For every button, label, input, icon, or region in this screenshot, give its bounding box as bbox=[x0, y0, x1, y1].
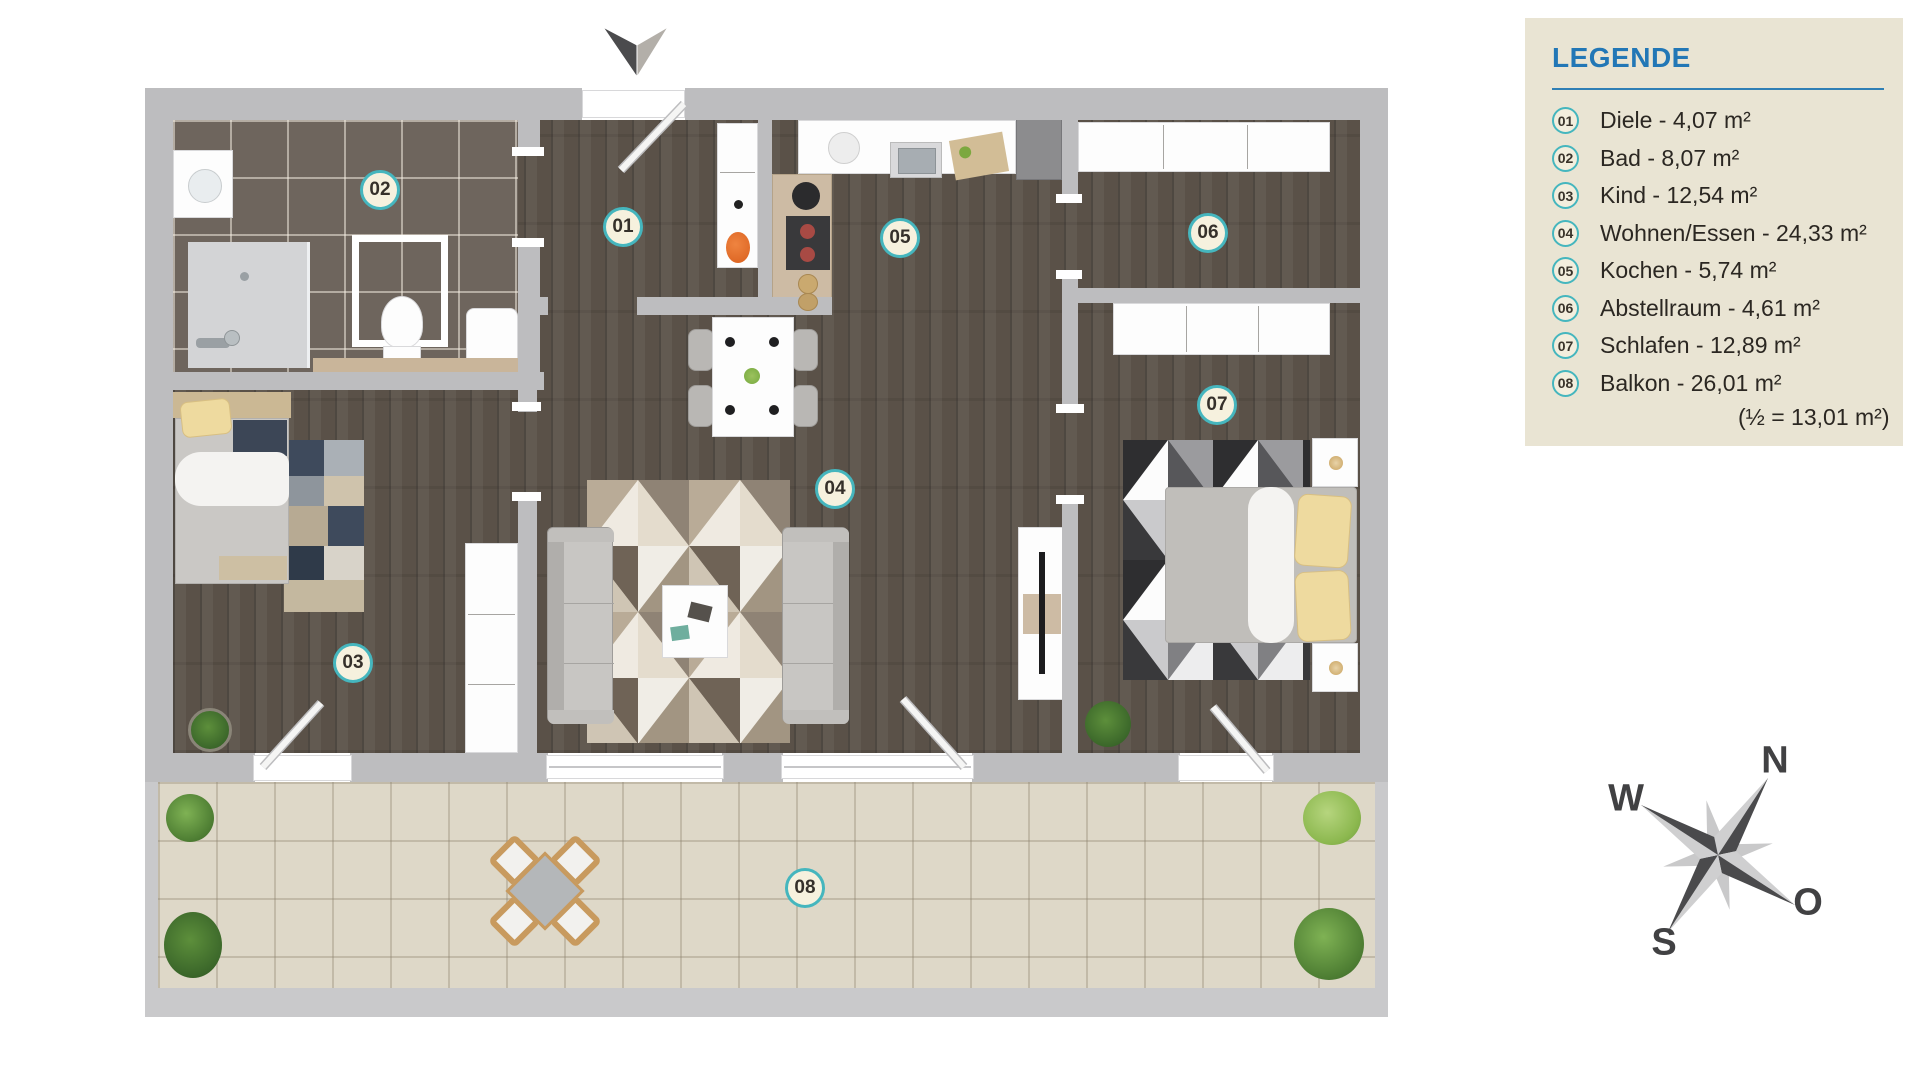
wall bbox=[145, 88, 582, 120]
wall bbox=[145, 372, 544, 390]
dining-chair bbox=[688, 385, 714, 427]
book bbox=[687, 602, 712, 623]
sideboard-divider bbox=[720, 172, 755, 173]
legend-title: LEGENDE bbox=[1552, 42, 1903, 74]
legend-number-badge: 02 bbox=[1552, 145, 1579, 172]
sofa-backrest bbox=[548, 528, 564, 724]
dining-chair bbox=[792, 385, 818, 427]
shelf-divider bbox=[1247, 125, 1248, 169]
legend-item-label: Bad - 8,07 m² bbox=[1600, 145, 1739, 172]
wall bbox=[145, 120, 173, 782]
sofa-backrest bbox=[833, 528, 849, 724]
burner bbox=[800, 247, 815, 262]
legend-number-badge: 08 bbox=[1552, 370, 1579, 397]
door-jamb bbox=[1056, 270, 1082, 279]
pillow bbox=[179, 397, 232, 438]
bedroom-wardrobe bbox=[1113, 303, 1330, 355]
compass-south-label: S bbox=[1651, 922, 1676, 965]
balcony-wall bbox=[1375, 782, 1388, 1017]
door-jamb bbox=[512, 238, 544, 247]
legend-item: 03 Kind - 12,54 m² bbox=[1552, 177, 1903, 215]
balcony-wall bbox=[145, 988, 1388, 1017]
magazine bbox=[670, 625, 690, 641]
room-badge-balkon: 08 bbox=[785, 868, 825, 908]
wall bbox=[1360, 120, 1388, 782]
legend-item: 04 Wohnen/Essen - 24,33 m² bbox=[1552, 215, 1903, 253]
sofa-armrest bbox=[783, 528, 849, 542]
cushion-seam bbox=[783, 603, 833, 604]
dining-chair bbox=[792, 329, 818, 371]
folded-blanket bbox=[233, 420, 287, 456]
shower-drain bbox=[240, 272, 249, 281]
dining-table bbox=[712, 317, 794, 437]
bed-foot-throw bbox=[219, 556, 287, 580]
legend-item-label: Abstellraum - 4,61 m² bbox=[1600, 295, 1820, 322]
balcony-door-threshold-kind bbox=[253, 755, 352, 781]
shelf-divider bbox=[1163, 125, 1164, 169]
compass-north-label: N bbox=[1761, 740, 1788, 783]
pillow bbox=[1294, 493, 1353, 569]
jar bbox=[798, 274, 818, 294]
nightstand bbox=[1312, 643, 1358, 692]
sofa bbox=[782, 527, 848, 723]
legend-item-label: Diele - 4,07 m² bbox=[1600, 107, 1751, 134]
room-badge-bad: 02 bbox=[360, 170, 400, 210]
room-badge-schlafen: 07 bbox=[1197, 385, 1237, 425]
tv bbox=[1039, 552, 1045, 674]
legend-item: 02 Bad - 8,07 m² bbox=[1552, 140, 1903, 178]
plant bbox=[188, 708, 232, 752]
duvet bbox=[175, 452, 289, 506]
wall bbox=[972, 753, 1180, 782]
plant bbox=[164, 912, 222, 978]
wall bbox=[1062, 120, 1078, 200]
wardrobe-divider bbox=[1258, 306, 1259, 352]
legend-divider bbox=[1552, 88, 1884, 90]
legend-item: 06 Abstellraum - 4,61 m² bbox=[1552, 290, 1903, 328]
balcony-wall bbox=[145, 782, 158, 1017]
legend-item: 07 Schlafen - 12,89 m² bbox=[1552, 327, 1903, 365]
legend-number-badge: 01 bbox=[1552, 107, 1579, 134]
wardrobe-divider bbox=[468, 614, 515, 615]
place-setting bbox=[769, 337, 779, 347]
nightstand bbox=[1312, 438, 1358, 487]
compass-west-label: W bbox=[1608, 778, 1644, 821]
cooktop bbox=[786, 216, 830, 270]
room-badge-kochen: 05 bbox=[880, 218, 920, 258]
kettle bbox=[792, 182, 820, 210]
balcony-door-threshold-schlafen bbox=[1178, 755, 1274, 781]
cushion-seam bbox=[564, 603, 614, 604]
plant bbox=[166, 794, 214, 842]
kids-wardrobe bbox=[465, 543, 518, 753]
door-jamb bbox=[1056, 495, 1084, 504]
wall bbox=[173, 753, 255, 782]
legend-item: 01 Diele - 4,07 m² bbox=[1552, 102, 1903, 140]
wall bbox=[722, 753, 783, 782]
sofa-armrest bbox=[783, 710, 849, 724]
jar bbox=[798, 293, 818, 311]
legend-number-badge: 04 bbox=[1552, 220, 1579, 247]
wardrobe-divider bbox=[468, 684, 515, 685]
bath-threshold-strip bbox=[313, 358, 518, 372]
wall bbox=[518, 240, 540, 390]
place-setting bbox=[725, 405, 735, 415]
shower-area bbox=[188, 242, 310, 368]
plant bbox=[1085, 701, 1131, 747]
wall bbox=[1272, 753, 1360, 782]
bathroom-vanity bbox=[173, 150, 233, 218]
storage-shelf bbox=[1078, 122, 1330, 172]
lamp bbox=[1329, 661, 1343, 675]
sofa-armrest bbox=[548, 710, 614, 724]
hall-sideboard bbox=[717, 123, 758, 268]
kitchen-sink bbox=[890, 142, 942, 178]
door-jamb bbox=[1056, 194, 1082, 203]
wall bbox=[758, 120, 772, 297]
wall bbox=[518, 88, 540, 155]
cushion-seam bbox=[564, 663, 614, 664]
lamp bbox=[1329, 456, 1343, 470]
room-badge-wohnen: 04 bbox=[815, 469, 855, 509]
legend-item-label: Schlafen - 12,89 m² bbox=[1600, 332, 1801, 359]
orange-bowl bbox=[726, 232, 750, 263]
wall bbox=[685, 88, 1388, 120]
legend-item-label: Wohnen/Essen - 24,33 m² bbox=[1600, 220, 1867, 247]
pillow bbox=[1294, 570, 1352, 643]
door-jamb bbox=[512, 402, 541, 411]
faucet-knob bbox=[734, 200, 743, 209]
entrance-arrow-icon bbox=[603, 27, 668, 77]
legend-footnote: (½ = 13,01 m²) bbox=[1738, 404, 1903, 431]
wall bbox=[518, 297, 548, 315]
window bbox=[781, 755, 974, 779]
door-jamb bbox=[1056, 404, 1084, 413]
wall bbox=[350, 753, 548, 782]
wall bbox=[1062, 497, 1078, 753]
herbs bbox=[958, 145, 972, 159]
legend-panel: LEGENDE 01 Diele - 4,07 m² 02 Bad - 8,07… bbox=[1525, 18, 1903, 446]
coffee-table bbox=[662, 585, 728, 658]
paper-roll bbox=[828, 132, 860, 164]
compass-east-label: O bbox=[1793, 882, 1823, 925]
room-badge-kind: 03 bbox=[333, 643, 373, 683]
legend-item-label: Kind - 12,54 m² bbox=[1600, 182, 1757, 209]
legend-number-badge: 05 bbox=[1552, 257, 1579, 284]
sofa-armrest bbox=[548, 528, 614, 542]
legend-item: 05 Kochen - 5,74 m² bbox=[1552, 252, 1903, 290]
door-jamb bbox=[512, 492, 541, 501]
legend-item-label: Kochen - 5,74 m² bbox=[1600, 257, 1776, 284]
legend-number-badge: 06 bbox=[1552, 295, 1579, 322]
tall-cabinet bbox=[1016, 118, 1062, 180]
cushion-seam bbox=[783, 663, 833, 664]
wardrobe-divider bbox=[1186, 306, 1187, 352]
plant bbox=[1303, 791, 1361, 845]
wall bbox=[1062, 288, 1360, 303]
legend-number-badge: 03 bbox=[1552, 182, 1579, 209]
balcony-floor bbox=[158, 782, 1375, 988]
place-setting bbox=[769, 405, 779, 415]
legend-item-label: Balkon - 26,01 m² bbox=[1600, 370, 1782, 397]
window-mullion bbox=[784, 766, 971, 768]
toilet bbox=[381, 296, 423, 348]
floorplan-page: N W O S 01 02 03 04 05 06 07 08 LEGENDE … bbox=[0, 0, 1920, 1081]
sofa bbox=[547, 527, 613, 723]
compass-rose-icon bbox=[1591, 728, 1846, 983]
place-setting bbox=[725, 337, 735, 347]
legend-number-badge: 07 bbox=[1552, 332, 1579, 359]
sink-basin bbox=[898, 148, 936, 174]
sink-bowl bbox=[188, 169, 222, 203]
entrance-threshold bbox=[582, 90, 685, 118]
table-plant bbox=[744, 368, 760, 384]
plant bbox=[1294, 908, 1364, 980]
room-badge-abstellraum: 06 bbox=[1188, 213, 1228, 253]
legend-item: 08 Balkon - 26,01 m² bbox=[1552, 365, 1903, 403]
wall bbox=[518, 495, 537, 753]
window-mullion bbox=[549, 766, 721, 768]
door-jamb bbox=[512, 147, 544, 156]
dining-chair bbox=[688, 329, 714, 371]
window bbox=[546, 755, 724, 779]
burner bbox=[800, 224, 815, 239]
bed-runner bbox=[1248, 487, 1294, 643]
tv-console bbox=[1018, 527, 1064, 700]
shower-head bbox=[224, 330, 240, 346]
kids-rug bbox=[284, 440, 364, 612]
room-badge-diele: 01 bbox=[603, 207, 643, 247]
